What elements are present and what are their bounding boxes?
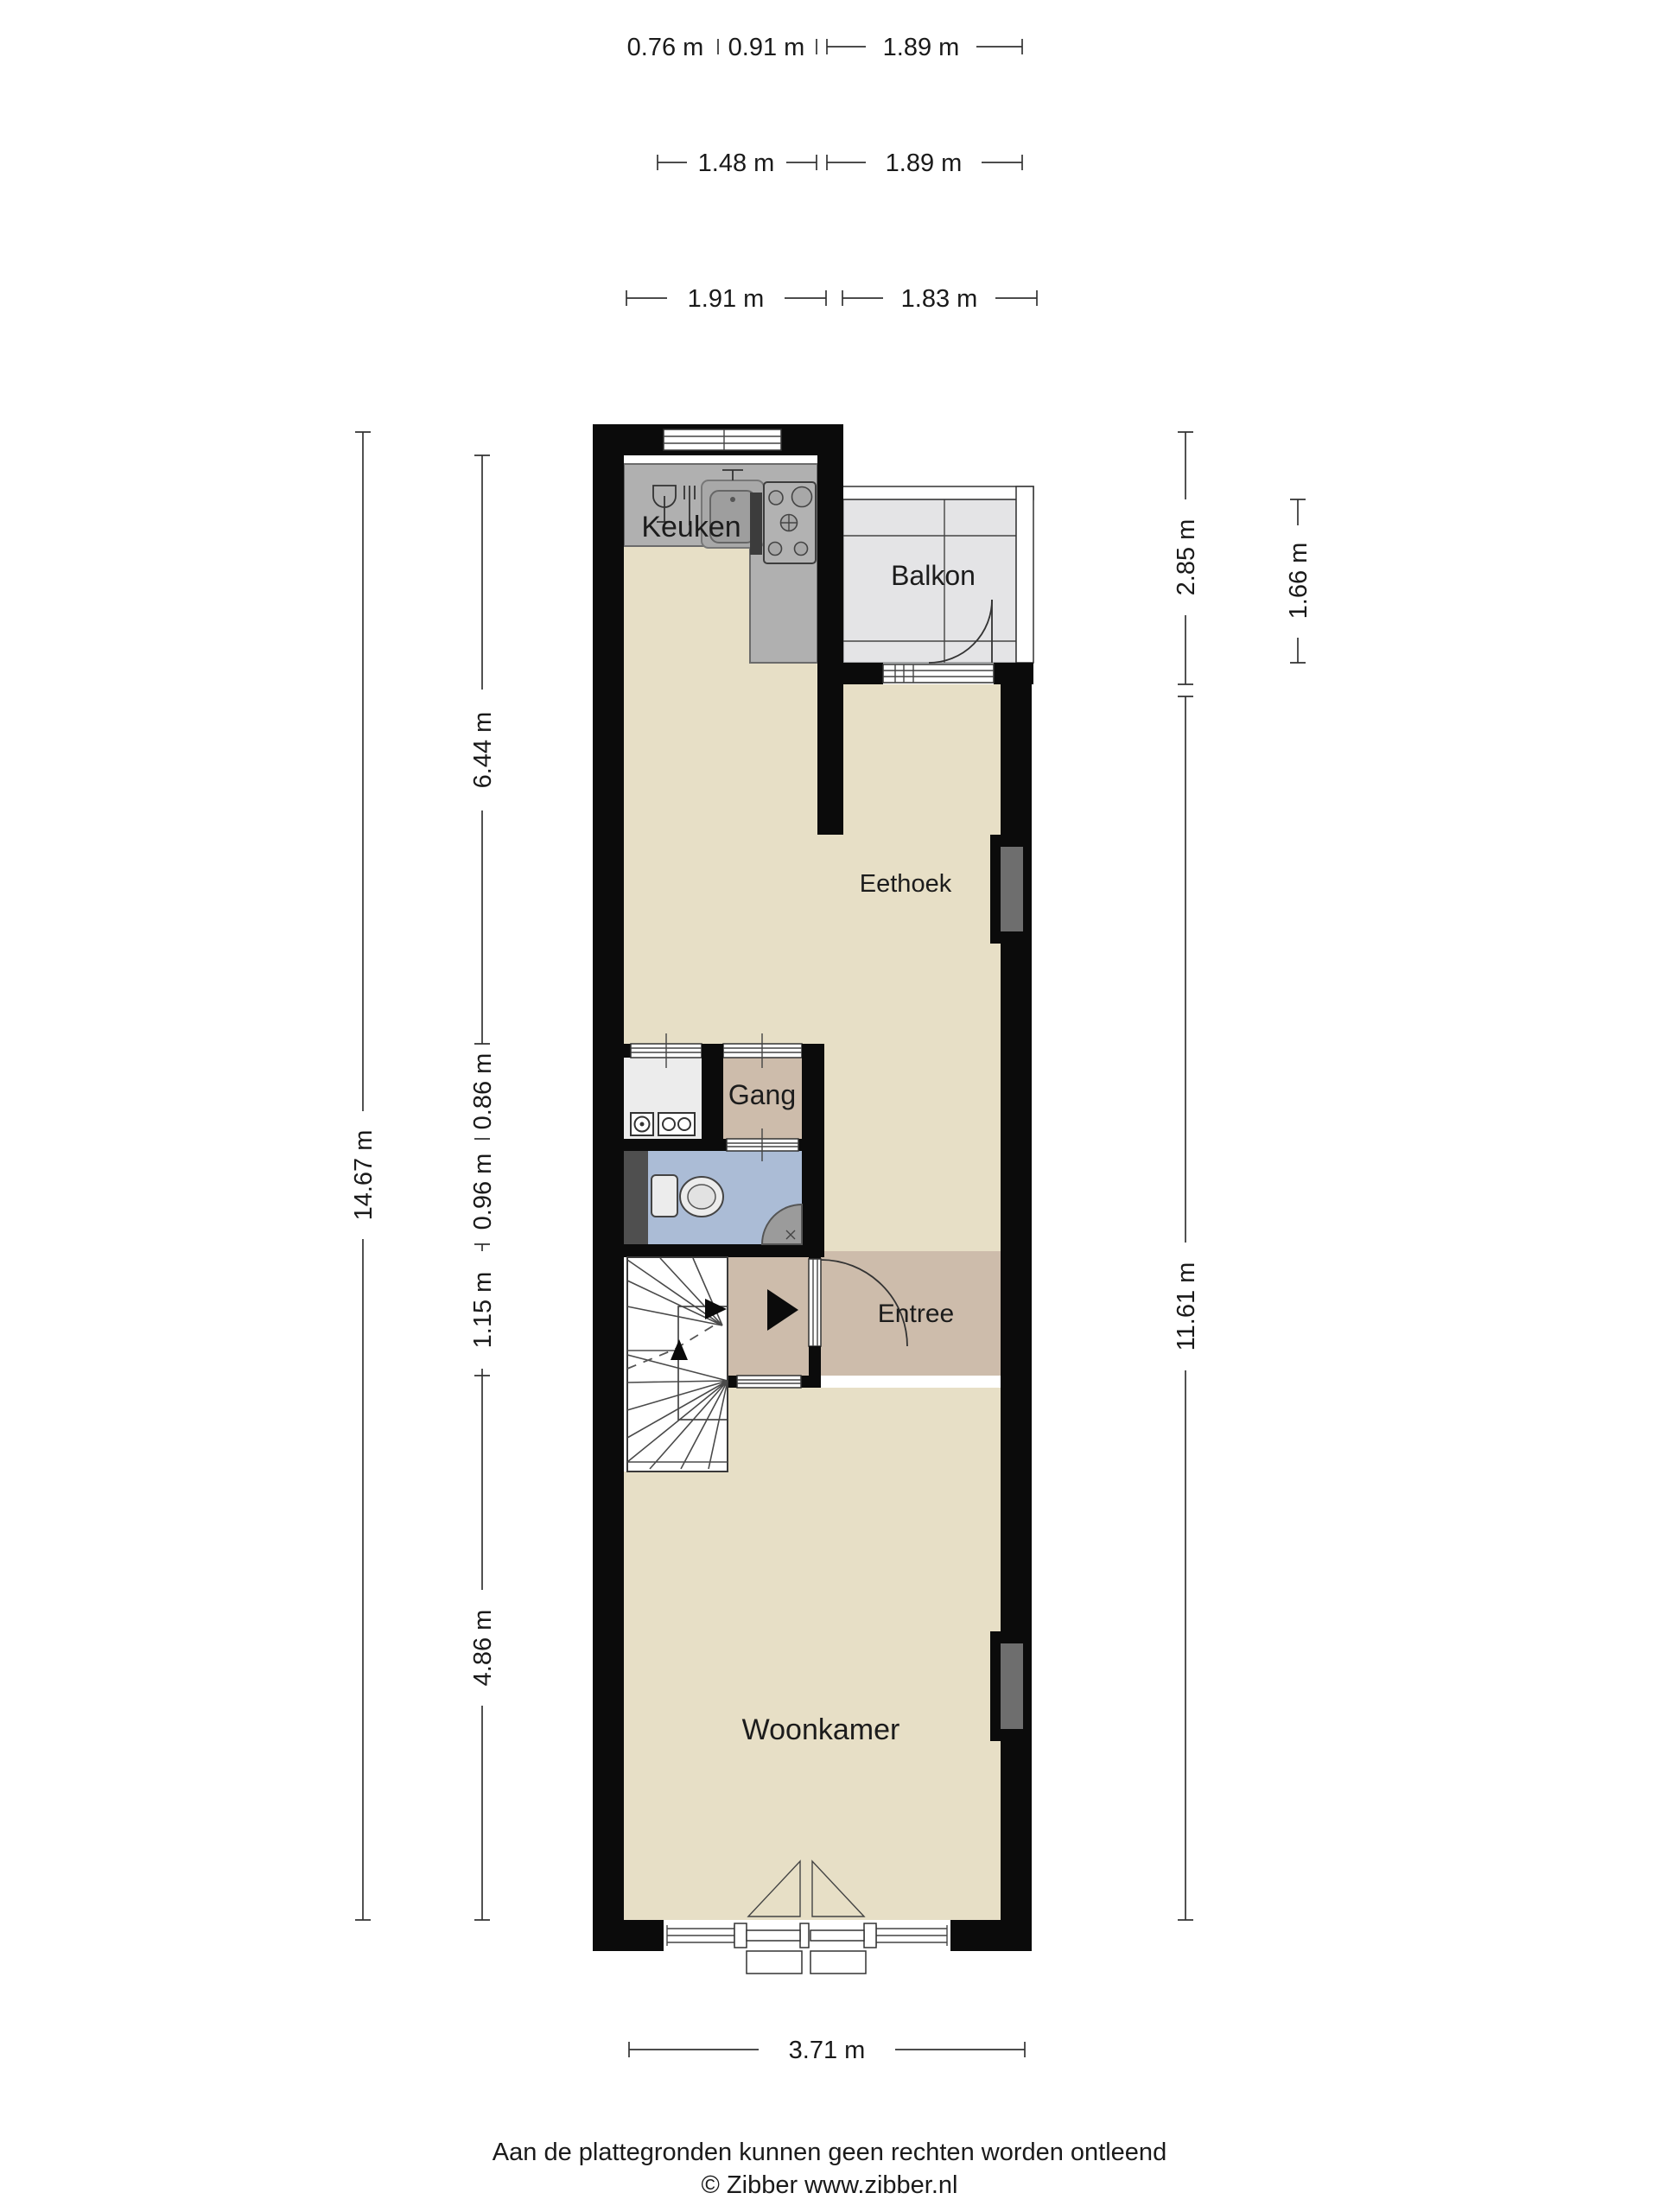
dim-label: 1.89 m	[886, 149, 963, 177]
french-door-leaf	[810, 1930, 864, 1941]
wall-bottom-left	[593, 1920, 664, 1951]
window-glyph	[667, 1925, 734, 1946]
footer: Aan de plattegronden kunnen geen rechten…	[493, 2139, 1166, 2199]
floorplan-page: Keuken Balkon Eethoek Gang Entree Woonka…	[0, 0, 1659, 2212]
kitchen-window	[664, 429, 781, 450]
footer-copyright: © Zibber www.zibber.nl	[702, 2171, 958, 2199]
dim-label: 6.44 m	[469, 712, 497, 789]
dim-label: 14.67 m	[350, 1130, 378, 1221]
dim-label: 0.76 m	[627, 34, 704, 61]
balcony-railing-top	[836, 486, 1033, 499]
dim-label: 1.83 m	[901, 285, 978, 313]
electric-meter-icon	[631, 1113, 653, 1135]
wall-wc-bottom	[624, 1244, 824, 1257]
wall-kitchen-right	[817, 424, 843, 835]
front-door	[809, 1259, 821, 1346]
dimensions-left: 14.67 m 6.44 m 0.86 m 0.96 m 1.15 m 4.86…	[350, 432, 497, 1920]
eethoek-floor	[843, 684, 1001, 1251]
dim-label: 0.86 m	[469, 1053, 497, 1130]
dimensions-top: 0.76 m 0.91 m 1.89 m 1.48 m 1.89 m 1.91 …	[626, 34, 1037, 313]
dim-label: 1.91 m	[688, 285, 765, 313]
dim-label: 2.85 m	[1173, 519, 1200, 596]
dim-label: 1.66 m	[1285, 543, 1313, 620]
dim-label: 1.15 m	[469, 1272, 497, 1349]
toilet-icon	[652, 1175, 723, 1217]
keuken-floor	[624, 546, 750, 1044]
balcony-door-window-band	[883, 664, 994, 683]
keuken-floor-lower	[750, 663, 817, 1044]
stove-icon	[750, 482, 816, 563]
balcony-railing-right	[1016, 486, 1033, 663]
wall-meterkast-gang	[702, 1044, 723, 1139]
chimney-eethoek	[990, 835, 1032, 944]
dimensions-right: 2.85 m 11.61 m 1.66 m	[1173, 432, 1313, 1920]
duct-shaft	[624, 1151, 648, 1244]
door-jamb	[864, 1923, 876, 1948]
dim-label: 11.61 m	[1173, 1262, 1200, 1351]
floorplan-drawing: Keuken Balkon Eethoek Gang Entree Woonka…	[0, 0, 1659, 2212]
dim-label: 1.89 m	[883, 34, 960, 61]
window-glyph	[876, 1925, 947, 1946]
door-sill	[747, 1951, 802, 1974]
stairs-area	[627, 1257, 728, 1471]
landing-window	[737, 1376, 801, 1388]
wall-left	[593, 424, 624, 1951]
dim-label: 4.86 m	[469, 1610, 497, 1687]
dim-label: 3.71 m	[789, 2037, 866, 2064]
fuse-box-icon	[658, 1113, 695, 1135]
dim-label: 1.48 m	[698, 149, 775, 177]
stairs	[627, 1257, 728, 1471]
room-label-woonkamer: Woonkamer	[742, 1713, 900, 1746]
room-label-entree: Entree	[878, 1300, 954, 1328]
room-label-keuken: Keuken	[641, 511, 741, 543]
door-sill	[810, 1951, 866, 1974]
room-label-balkon: Balkon	[891, 560, 976, 591]
chimney-woonkamer	[990, 1631, 1032, 1741]
dimensions-bottom: 3.71 m	[629, 2037, 1025, 2064]
footer-disclaimer: Aan de plattegronden kunnen geen rechten…	[493, 2139, 1166, 2166]
french-door-leaf	[747, 1930, 800, 1941]
room-label-gang: Gang	[728, 1079, 796, 1110]
dim-label: 0.96 m	[469, 1154, 497, 1230]
door-jamb	[734, 1923, 747, 1948]
room-label-eethoek: Eethoek	[860, 870, 952, 898]
dim-label: 0.91 m	[728, 34, 805, 61]
door-jamb	[800, 1923, 809, 1948]
wall-frontdoor-top	[809, 1244, 821, 1259]
wall-bottom-right	[950, 1920, 1032, 1951]
